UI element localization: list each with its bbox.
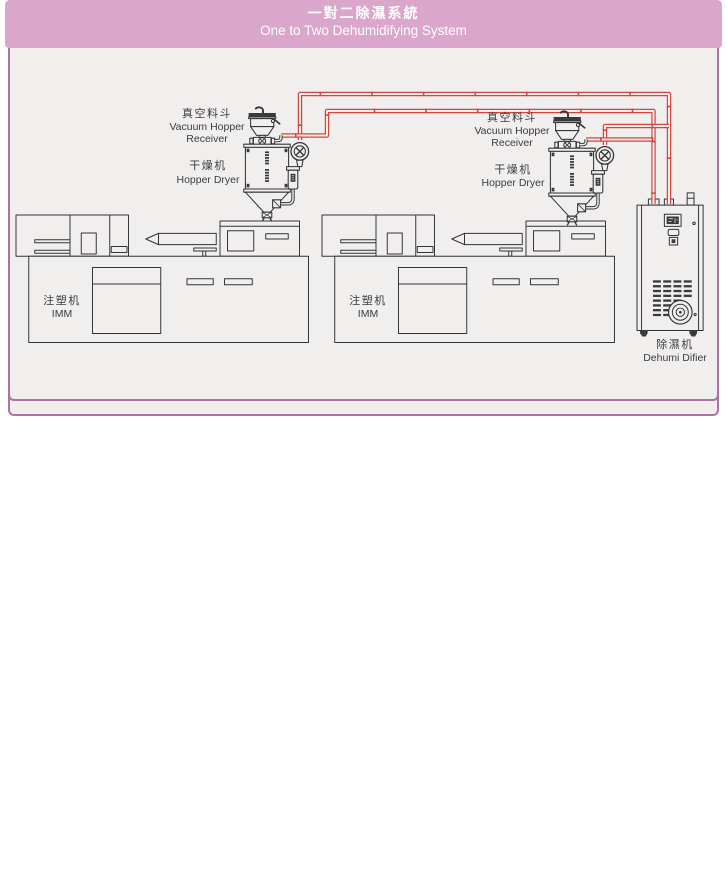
label-hopper-dryer-right-en: Hopper Dryer [481,177,545,189]
label-vacuum-hopper-right-en2: Receiver [491,137,533,149]
label-imm-left-en: IMM [52,308,72,320]
label-hopper-dryer-left-en: Hopper Dryer [176,174,240,186]
label-hopper-dryer-right-zh: 干燥机 [494,162,532,176]
label-dehumidifier-zh: 除濕机 [656,337,694,351]
label-vacuum-hopper-left-en2: Receiver [186,133,228,145]
label-imm-right-zh: 注塑机 [349,293,387,307]
label-vacuum-hopper-right-en1: Vacuum Hopper [474,125,550,137]
label-imm-left-zh: 注塑机 [43,293,81,307]
label-imm-right-en: IMM [358,308,378,320]
label-hopper-dryer-left-zh: 干燥机 [189,158,227,172]
label-dehumidifier-en: Dehumi Difier [643,352,707,364]
dehumidifier-unit [637,193,703,337]
label-vacuum-hopper-right-zh: 真空料斗 [487,110,537,124]
label-vacuum-hopper-left-en1: Vacuum Hopper [169,121,245,133]
panel-header: 一對二除濕系統 One to Two Dehumidifying System [5,0,722,48]
diagram-canvas: 真空料斗 Vacuum Hopper Receiver 干燥机 Hopper D… [8,48,719,401]
panel-one-to-two: 一對二除濕系統 One to Two Dehumidifying System [5,0,722,401]
imm-machine-right [322,215,615,343]
page: 一對一除濕系統 One to One Dehumidifying System [0,0,727,878]
panel-title-zh: 一對二除濕系統 [5,0,722,22]
label-vacuum-hopper-left-zh: 真空料斗 [182,106,232,120]
imm-machine-left [16,215,309,343]
diagram-svg: 真空料斗 Vacuum Hopper Receiver 干燥机 Hopper D… [10,48,717,399]
panel-title-en: One to Two Dehumidifying System [5,22,722,39]
